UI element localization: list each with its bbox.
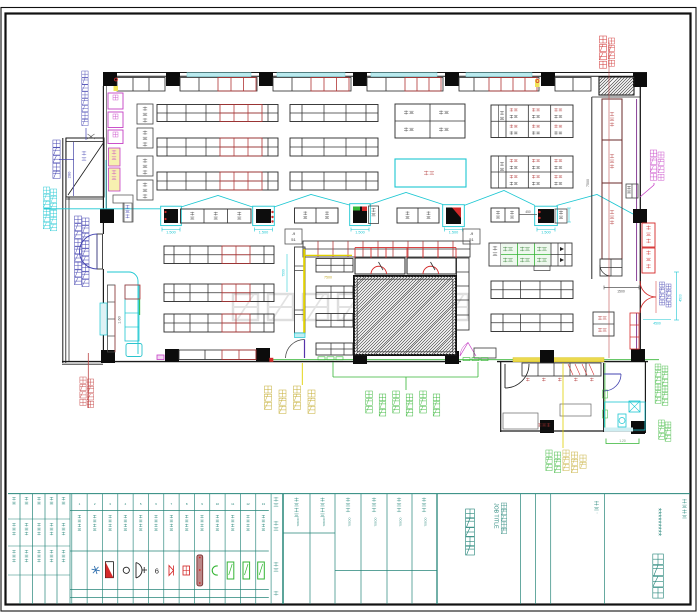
svg-text:1.500: 1.500	[355, 231, 365, 235]
svg-text:JOB TITLE: JOB TITLE	[493, 503, 499, 529]
svg-text:3: 3	[109, 502, 111, 506]
svg-text:1500: 1500	[617, 290, 625, 294]
svg-text:1.500: 1.500	[541, 231, 551, 235]
svg-text:7500: 7500	[586, 179, 590, 187]
svg-text:*********: *********	[654, 508, 663, 536]
svg-text:8: 8	[186, 502, 188, 506]
svg-text:200: 200	[67, 171, 72, 178]
svg-text:OO3OL: OO3OL	[399, 518, 403, 527]
svg-text:7500: 7500	[324, 276, 332, 280]
svg-text:-9: -9	[292, 231, 296, 236]
svg-text:1: 1	[79, 502, 81, 506]
svg-text:OO3OL: OO3OL	[348, 518, 352, 527]
svg-text:4500: 4500	[679, 294, 683, 302]
svg-text:OO3OL: OO3OL	[322, 518, 326, 527]
svg-text:1.500: 1.500	[449, 231, 459, 235]
svg-text:1.500: 1.500	[259, 231, 269, 235]
svg-text:OO3OL: OO3OL	[296, 518, 300, 527]
svg-text:10: 10	[216, 502, 220, 506]
svg-text:13: 13	[262, 502, 266, 506]
svg-text:51: 51	[291, 237, 296, 242]
svg-text:4: 4	[125, 502, 127, 506]
svg-text:11: 11	[231, 502, 234, 506]
svg-text:450: 450	[525, 210, 531, 214]
svg-text:4500: 4500	[653, 322, 661, 326]
svg-text:2: 2	[94, 502, 96, 506]
svg-text:7: 7	[171, 502, 173, 506]
svg-text:51: 51	[469, 237, 474, 242]
svg-text:-9: -9	[470, 231, 474, 236]
svg-text:9: 9	[201, 502, 203, 506]
svg-text:1.60: 1.60	[118, 316, 122, 323]
svg-text:7500: 7500	[282, 269, 286, 277]
svg-text:6: 6	[155, 502, 157, 506]
svg-text:12: 12	[246, 502, 250, 506]
svg-text:1.500: 1.500	[166, 231, 176, 235]
svg-text::: :	[596, 510, 597, 515]
svg-text:6: 6	[155, 567, 159, 576]
svg-text:OO3OL: OO3OL	[424, 518, 428, 527]
svg-text:5: 5	[140, 502, 142, 506]
svg-text:OO3OL: OO3OL	[374, 518, 378, 527]
svg-text:1.20: 1.20	[619, 439, 626, 443]
